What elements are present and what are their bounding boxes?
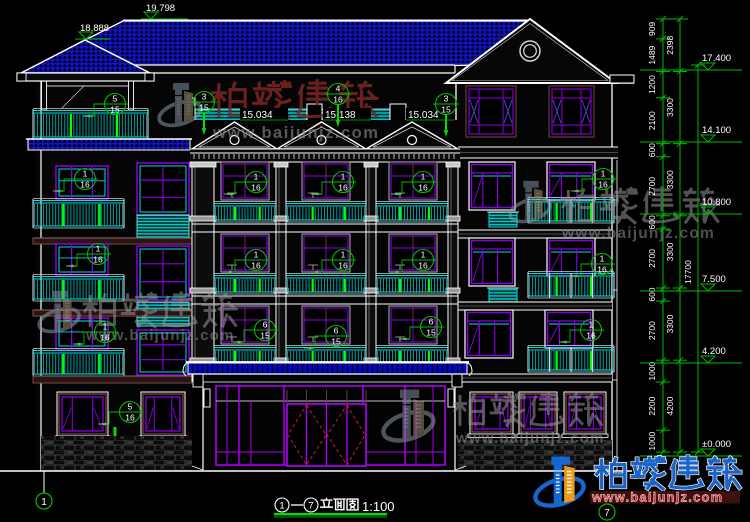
svg-text:600: 600 — [647, 215, 657, 229]
svg-text:1: 1 — [96, 244, 101, 254]
svg-text:2200: 2200 — [647, 396, 657, 415]
svg-text:16: 16 — [80, 180, 90, 190]
svg-text:1200: 1200 — [647, 75, 657, 94]
svg-text:1000: 1000 — [647, 361, 657, 380]
svg-text:15.034: 15.034 — [242, 110, 273, 121]
svg-text:2398: 2398 — [665, 36, 675, 55]
svg-text:1: 1 — [279, 501, 284, 512]
svg-text:1: 1 — [589, 320, 594, 330]
svg-text:18.888: 18.888 — [80, 23, 109, 34]
svg-text:2700: 2700 — [647, 177, 657, 196]
svg-text:www.baijunjz.com: www.baijunjz.com — [455, 430, 605, 447]
svg-text:7: 7 — [604, 508, 610, 519]
svg-text:15: 15 — [260, 331, 270, 341]
svg-text:1: 1 — [254, 250, 259, 260]
svg-text:17.400: 17.400 — [702, 53, 731, 64]
svg-text:4200: 4200 — [665, 396, 675, 415]
svg-text:16: 16 — [125, 413, 135, 423]
svg-text:909: 909 — [647, 22, 657, 36]
svg-text:16: 16 — [333, 95, 343, 105]
svg-text:14.100: 14.100 — [702, 125, 731, 136]
svg-text:5: 5 — [113, 94, 118, 104]
svg-text:2100: 2100 — [647, 111, 657, 130]
svg-text:1: 1 — [103, 322, 108, 332]
svg-text:15: 15 — [110, 105, 120, 115]
svg-text:6: 6 — [429, 317, 434, 327]
svg-text:16: 16 — [251, 183, 261, 193]
svg-text:16: 16 — [100, 333, 110, 343]
svg-text:15: 15 — [441, 105, 451, 115]
svg-text:10.800: 10.800 — [702, 197, 731, 208]
svg-text:7: 7 — [308, 501, 313, 512]
svg-text:2700: 2700 — [647, 321, 657, 340]
svg-text:17700: 17700 — [683, 260, 693, 284]
svg-text:3300: 3300 — [665, 170, 675, 189]
svg-text:16: 16 — [93, 255, 103, 265]
svg-text:6: 6 — [263, 320, 268, 330]
svg-text:16: 16 — [418, 261, 428, 271]
svg-text:1: 1 — [254, 172, 259, 182]
svg-text:3: 3 — [444, 94, 449, 104]
svg-text:16: 16 — [586, 331, 596, 341]
svg-text:19.798: 19.798 — [146, 3, 175, 14]
svg-text:5: 5 — [128, 402, 133, 412]
svg-text:www.baijunjz.com: www.baijunjz.com — [212, 124, 379, 142]
svg-text:3300: 3300 — [665, 242, 675, 261]
svg-text:16: 16 — [338, 183, 348, 193]
svg-text:1: 1 — [600, 254, 605, 264]
svg-text:3300: 3300 — [665, 98, 675, 117]
svg-text:15.138: 15.138 — [325, 110, 356, 121]
svg-text:15: 15 — [331, 337, 341, 347]
svg-text:1: 1 — [341, 172, 346, 182]
svg-text:6: 6 — [334, 326, 339, 336]
svg-text:16: 16 — [597, 265, 607, 275]
svg-text:1000: 1000 — [647, 431, 657, 450]
svg-text:1: 1 — [601, 169, 606, 179]
svg-text:1:100: 1:100 — [362, 499, 395, 514]
svg-text:1: 1 — [341, 250, 346, 260]
svg-text:1489: 1489 — [647, 45, 657, 64]
svg-text:600: 600 — [647, 143, 657, 157]
svg-text:16: 16 — [338, 261, 348, 271]
svg-text:1: 1 — [421, 250, 426, 260]
svg-text:3: 3 — [202, 92, 207, 102]
svg-text:1: 1 — [83, 169, 88, 179]
svg-text:16: 16 — [598, 180, 608, 190]
svg-text:16: 16 — [418, 183, 428, 193]
svg-text:www.baijunjz.com: www.baijunjz.com — [561, 225, 715, 242]
svg-text:4: 4 — [336, 84, 341, 94]
svg-text:600: 600 — [647, 287, 657, 301]
svg-text:15: 15 — [199, 103, 209, 113]
svg-text:±0.000: ±0.000 — [702, 439, 731, 450]
svg-text:2700: 2700 — [647, 249, 657, 268]
svg-text:1: 1 — [41, 497, 47, 508]
svg-text:16: 16 — [251, 261, 261, 271]
svg-text:15.034: 15.034 — [408, 110, 439, 121]
svg-text:7.500: 7.500 — [702, 274, 726, 285]
svg-text:1: 1 — [421, 172, 426, 182]
svg-text:3300: 3300 — [665, 314, 675, 333]
svg-text:4.200: 4.200 — [702, 346, 726, 357]
svg-text:15: 15 — [426, 328, 436, 338]
svg-text:www.baijunjz.com: www.baijunjz.com — [591, 490, 723, 505]
